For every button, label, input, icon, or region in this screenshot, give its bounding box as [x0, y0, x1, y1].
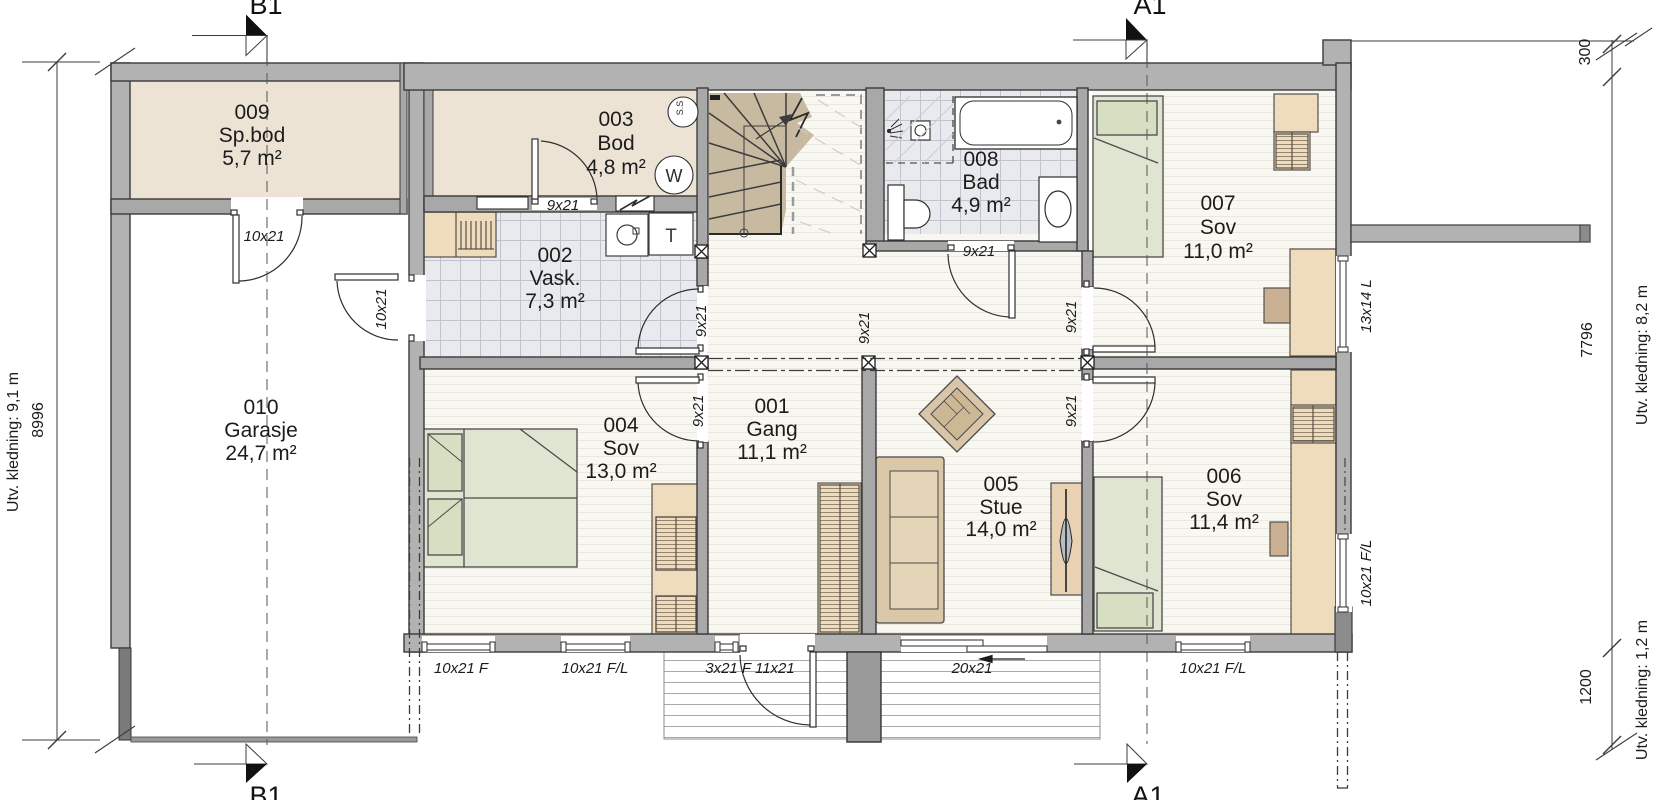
svg-text:Sov: Sov	[1200, 216, 1237, 239]
svg-text:Sp.bod: Sp.bod	[219, 124, 286, 147]
svg-text:11,4 m²: 11,4 m²	[1189, 511, 1259, 534]
svg-text:10x21: 10x21	[373, 289, 390, 330]
svg-text:7,3 m²: 7,3 m²	[525, 290, 585, 313]
svg-text:003: 003	[598, 108, 633, 131]
svg-text:Sov: Sov	[603, 437, 640, 460]
svg-text:9x21: 9x21	[693, 305, 710, 338]
svg-text:001: 001	[754, 395, 789, 418]
svg-text:9x21: 9x21	[690, 395, 707, 428]
svg-text:009: 009	[234, 101, 269, 124]
svg-text:Bad: Bad	[962, 171, 999, 194]
svg-text:9x21: 9x21	[856, 312, 873, 345]
svg-text:8996: 8996	[30, 402, 47, 438]
svg-text:9x21: 9x21	[963, 243, 996, 260]
svg-text:13x14 L: 13x14 L	[1358, 279, 1375, 332]
svg-text:Garasje: Garasje	[224, 419, 298, 442]
svg-text:Bod: Bod	[597, 132, 634, 155]
svg-text:A1: A1	[1131, 781, 1164, 800]
svg-text:24,7 m²: 24,7 m²	[225, 442, 296, 465]
svg-text:002: 002	[537, 244, 572, 267]
svg-text:007: 007	[1200, 192, 1235, 215]
svg-text:9x21: 9x21	[547, 197, 580, 214]
svg-text:T: T	[665, 226, 677, 247]
svg-text:14,0 m²: 14,0 m²	[965, 518, 1036, 541]
svg-text:Vask.: Vask.	[530, 267, 581, 290]
svg-text:10x21 F/L: 10x21 F/L	[1358, 540, 1375, 607]
svg-text:010: 010	[243, 396, 278, 419]
svg-text:11,0 m²: 11,0 m²	[1183, 240, 1253, 263]
svg-text:W: W	[666, 166, 683, 186]
svg-text:9x21: 9x21	[1063, 301, 1080, 334]
svg-text:4,8 m²: 4,8 m²	[586, 156, 646, 179]
svg-text:9x21: 9x21	[1063, 395, 1080, 428]
svg-text:10x21 F/L: 10x21 F/L	[1180, 660, 1247, 677]
svg-text:13,0 m²: 13,0 m²	[585, 460, 656, 483]
svg-text:008: 008	[963, 148, 998, 171]
svg-text:006: 006	[1206, 465, 1241, 488]
svg-text:300: 300	[1577, 39, 1594, 66]
svg-text:S.S: S.S	[675, 101, 685, 116]
svg-text:20x21: 20x21	[951, 660, 993, 677]
svg-text:10x21: 10x21	[244, 228, 285, 245]
svg-text:7796: 7796	[1579, 322, 1596, 358]
svg-text:B1: B1	[249, 781, 282, 800]
svg-text:B1: B1	[249, 0, 282, 20]
svg-text:005: 005	[983, 473, 1018, 496]
svg-text:10x21 F: 10x21 F	[434, 660, 489, 677]
svg-text:Gang: Gang	[746, 418, 797, 441]
svg-text:3x21 F 11x21: 3x21 F 11x21	[705, 660, 795, 677]
svg-text:004: 004	[603, 414, 638, 437]
svg-text:4,9 m²: 4,9 m²	[951, 194, 1011, 217]
svg-text:Utv. kledning: 1,2 m: Utv. kledning: 1,2 m	[1634, 620, 1651, 760]
svg-text:Stue: Stue	[979, 496, 1022, 519]
svg-text:Utv. kledning: 8,2 m: Utv. kledning: 8,2 m	[1634, 285, 1651, 425]
svg-text:1200: 1200	[1578, 669, 1595, 705]
svg-text:Sov: Sov	[1206, 488, 1243, 511]
svg-text:Utv. kledning: 9,1 m: Utv. kledning: 9,1 m	[5, 372, 22, 512]
svg-text:10x21 F/L: 10x21 F/L	[562, 660, 629, 677]
svg-text:11,1 m²: 11,1 m²	[737, 441, 807, 464]
svg-text:A1: A1	[1133, 0, 1166, 20]
svg-text:5,7 m²: 5,7 m²	[222, 147, 282, 170]
